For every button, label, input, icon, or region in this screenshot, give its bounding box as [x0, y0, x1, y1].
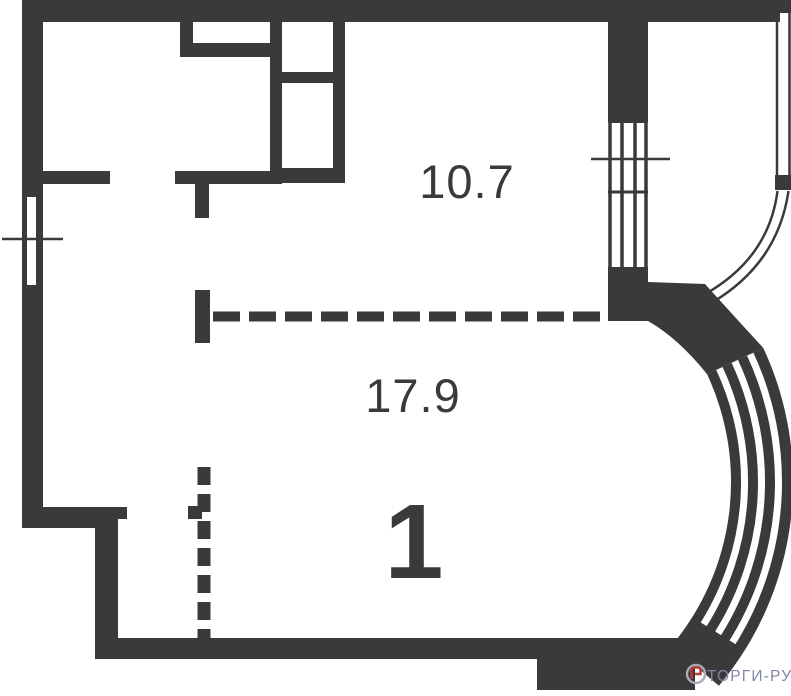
- thin-lines: [2, 13, 790, 302]
- watermark-text: ТОРГИ-РУ: [707, 668, 791, 685]
- hall-wall-stub: [195, 184, 209, 218]
- closet-divider-wall: [282, 72, 333, 83]
- balcony-edge-block: [775, 175, 791, 190]
- floorplan: 10.7 17.9 1 ТОРГИ-РУ: [0, 0, 791, 696]
- shaft-stub-wall: [180, 22, 193, 44]
- floorplan-svg: 10.7 17.9 1 ТОРГИ-РУ: [0, 0, 791, 696]
- left-window-slot: [27, 197, 36, 285]
- watermark: ТОРГИ-РУ: [687, 665, 791, 685]
- shaft-bottom-wall: [180, 43, 270, 57]
- window-pier-top: [608, 22, 648, 123]
- closet-right-wall: [333, 22, 345, 168]
- partition-stub-wall: [195, 290, 210, 343]
- balcony-outline-outer-arc: [713, 191, 789, 302]
- top-wall-right-extension: [780, 0, 791, 13]
- apartment-number-label: 1: [385, 483, 444, 601]
- lower-left-wall: [95, 507, 118, 659]
- wall-cutouts: [27, 197, 36, 285]
- closet-left-wall: [270, 22, 282, 183]
- hall-wall-left-segment: [43, 171, 110, 184]
- top-wall: [22, 0, 780, 22]
- closet-bottom-wall: [282, 168, 345, 183]
- labels: 10.7 17.9 1: [365, 155, 514, 601]
- room-area-label-lower: 17.9: [365, 369, 460, 422]
- window-pier-block: [608, 267, 648, 321]
- room-area-label-upper: 10.7: [419, 155, 514, 208]
- bottom-wall-right: [537, 638, 695, 690]
- bottom-wall-left: [95, 638, 537, 659]
- balcony-outline-inner-arc: [707, 191, 778, 293]
- hall-wall-right-segment: [175, 171, 282, 184]
